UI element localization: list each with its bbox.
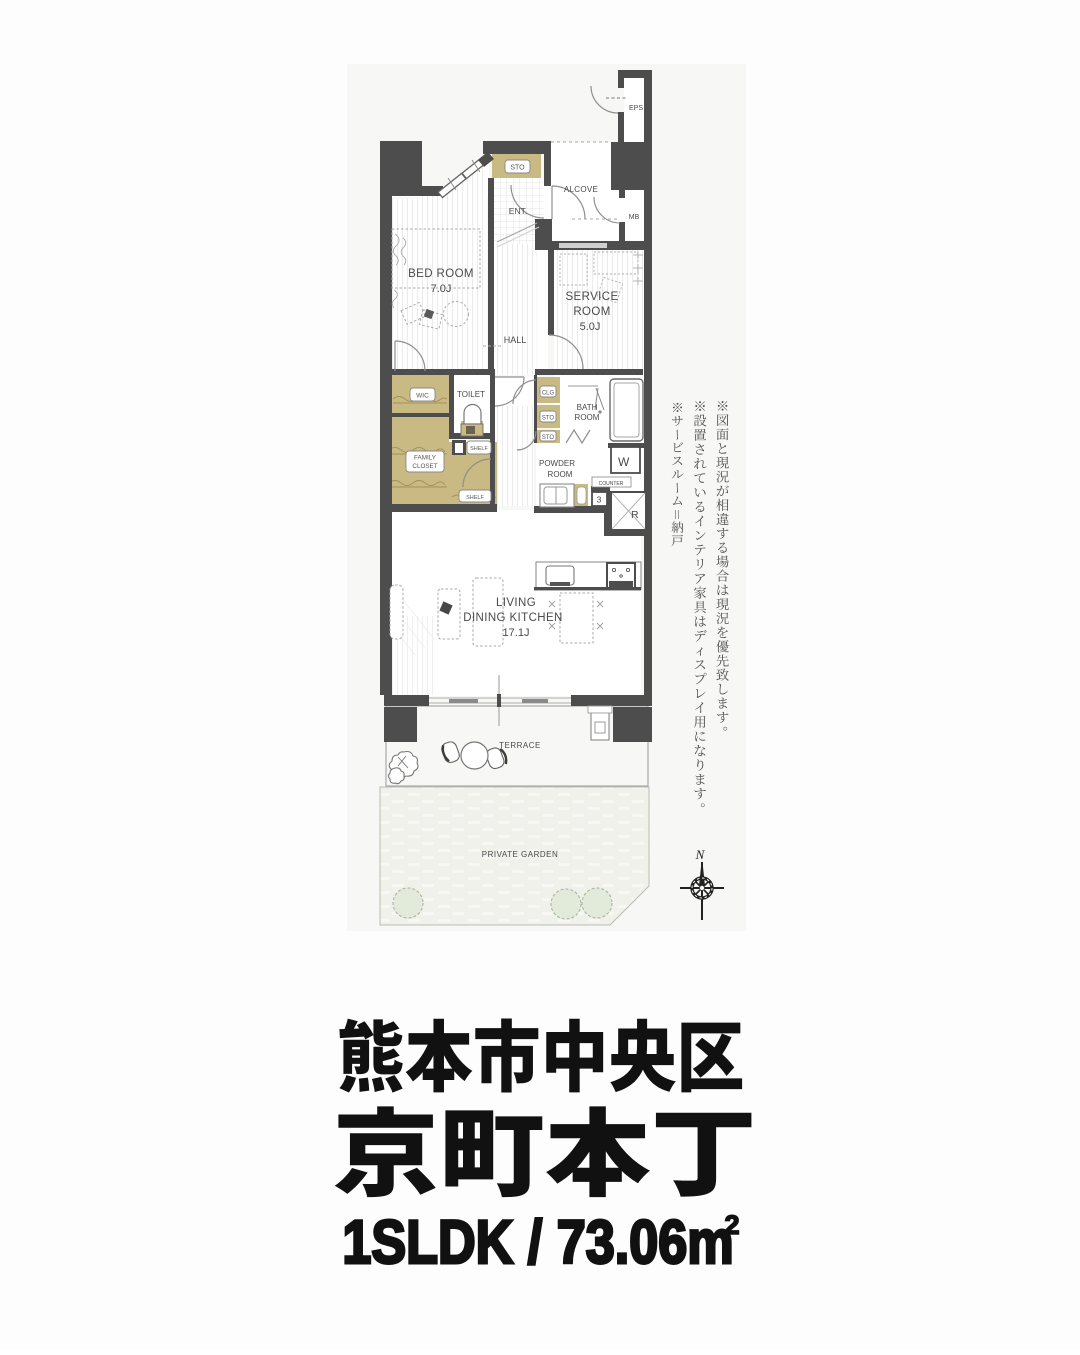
svg-text:TOILET: TOILET xyxy=(457,390,485,399)
svg-text:ROOM: ROOM xyxy=(575,413,600,422)
svg-text:COUNTER: COUNTER xyxy=(599,481,624,487)
svg-text:ALCOVE: ALCOVE xyxy=(564,185,598,194)
svg-text:R: R xyxy=(631,509,639,521)
svg-text:N: N xyxy=(695,847,706,862)
svg-text:7.0J: 7.0J xyxy=(431,283,452,295)
svg-text:LIVING: LIVING xyxy=(496,597,536,609)
svg-text:2: 2 xyxy=(724,1210,739,1240)
svg-text:PRIVATE GARDEN: PRIVATE GARDEN xyxy=(482,850,559,859)
svg-text:SHELF: SHELF xyxy=(470,446,488,452)
svg-text:HALL: HALL xyxy=(504,335,527,345)
svg-text:17.1J: 17.1J xyxy=(503,627,530,639)
svg-text:ROOM: ROOM xyxy=(573,306,610,318)
svg-text:SHELF: SHELF xyxy=(466,495,484,501)
svg-text:CLG: CLG xyxy=(542,391,555,397)
svg-text:W: W xyxy=(618,455,630,469)
svg-text:STO: STO xyxy=(542,416,555,422)
svg-text:FAMILY: FAMILY xyxy=(414,455,437,462)
svg-text:MB: MB xyxy=(629,214,640,221)
svg-text:5.0J: 5.0J xyxy=(580,321,601,333)
svg-text:WIC: WIC xyxy=(416,393,429,400)
svg-text:STO: STO xyxy=(510,165,525,172)
svg-text:STO: STO xyxy=(542,435,555,441)
svg-text:DINING KITCHEN: DINING KITCHEN xyxy=(463,612,563,624)
svg-text:EPS: EPS xyxy=(629,105,643,112)
svg-text:CLOSET: CLOSET xyxy=(412,463,437,470)
svg-text:TERRACE: TERRACE xyxy=(499,741,541,750)
svg-text:ENT.: ENT. xyxy=(509,206,527,216)
svg-text:POWDER: POWDER xyxy=(539,459,575,468)
svg-text:ROOM: ROOM xyxy=(548,470,573,479)
svg-text:BED ROOM: BED ROOM xyxy=(408,268,474,280)
svg-text:BATH: BATH xyxy=(577,403,598,412)
svg-text:3: 3 xyxy=(597,495,602,505)
svg-text:SERVICE: SERVICE xyxy=(565,291,618,303)
svg-text:1SLDK / 73.06m: 1SLDK / 73.06m xyxy=(342,1209,733,1277)
